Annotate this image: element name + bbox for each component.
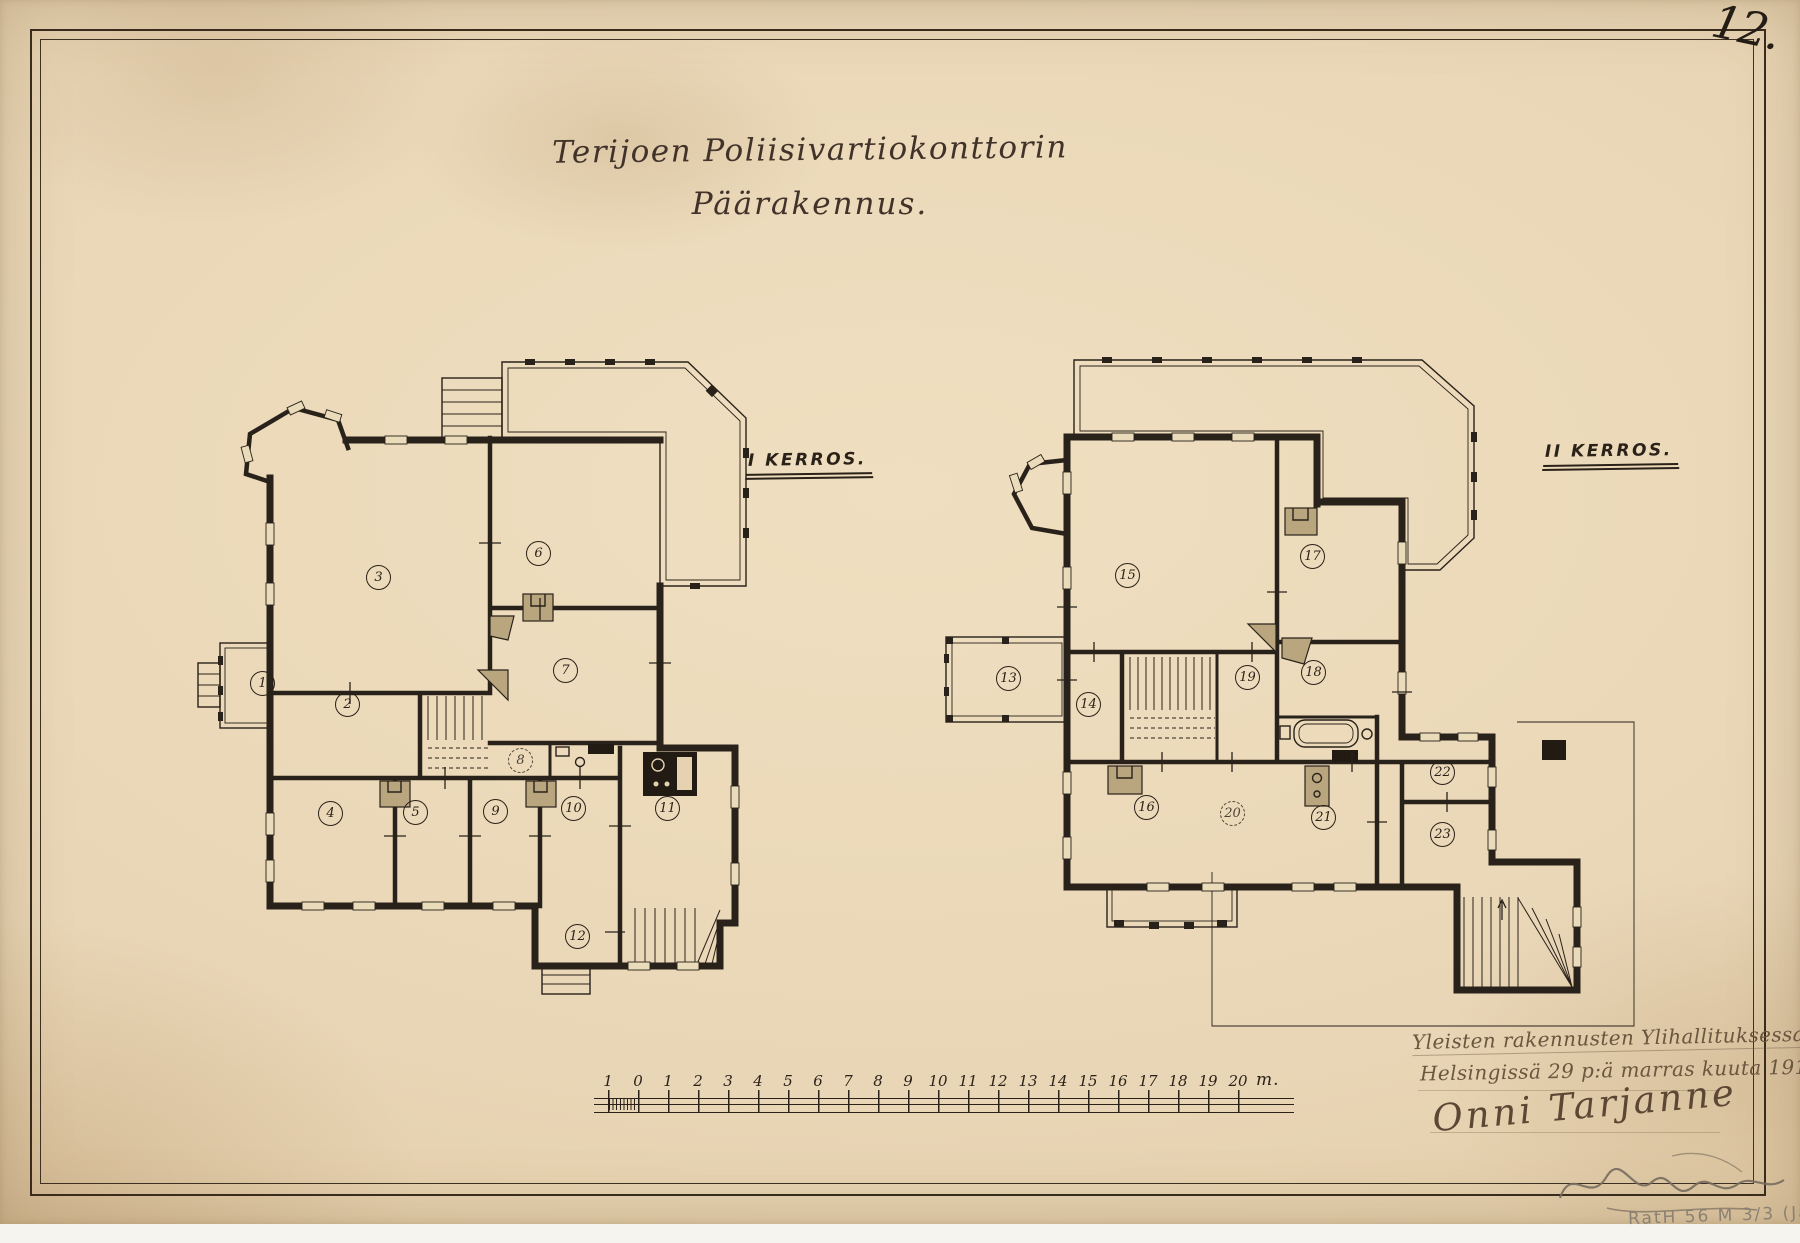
floor1-veranda-posts bbox=[525, 359, 749, 589]
room-number-22: 22 bbox=[1430, 760, 1455, 785]
scale-label-7: 6 bbox=[813, 1072, 823, 1090]
room-number-14: 14 bbox=[1076, 692, 1101, 717]
room-number-2: 2 bbox=[335, 692, 360, 717]
room-number-16: 16 bbox=[1134, 795, 1159, 820]
floor2-bathroom bbox=[1280, 720, 1372, 762]
room-number-11: 11 bbox=[655, 796, 680, 821]
floor1-back-staircase bbox=[635, 908, 720, 964]
scale-label-12: 11 bbox=[958, 1072, 977, 1090]
floor2-plan: 1314151617181920212223 bbox=[862, 342, 1652, 1032]
floor1-interior-walls bbox=[270, 438, 660, 966]
room-number-1: 1 bbox=[250, 671, 275, 696]
room-number-13: 13 bbox=[996, 666, 1021, 691]
room-number-8: 8 bbox=[508, 748, 533, 773]
room-number-23: 23 bbox=[1430, 822, 1455, 847]
floor1-tile-stoves bbox=[380, 594, 556, 807]
floor2-rear-terrace bbox=[1107, 887, 1237, 929]
floor1-exterior-steps bbox=[542, 966, 590, 994]
room-number-19: 19 bbox=[1235, 665, 1260, 690]
scale-bar-rails bbox=[594, 1098, 1294, 1113]
room-number-6: 6 bbox=[526, 541, 551, 566]
floor2-drawing bbox=[862, 342, 1652, 1032]
floor2-bay bbox=[1014, 460, 1067, 534]
floor2-staircase bbox=[1130, 657, 1215, 738]
floor1-door-ticks bbox=[350, 543, 671, 932]
scale-bar: 101234567891011121314151617181920 m. bbox=[608, 1072, 1308, 1120]
room-number-17: 17 bbox=[1300, 544, 1325, 569]
scale-bar-hatch bbox=[609, 1099, 637, 1110]
title-line-1: Terijoen Poliisivartiokonttorin bbox=[480, 129, 1140, 172]
scale-label-11: 10 bbox=[928, 1072, 947, 1090]
scale-label-18: 17 bbox=[1138, 1072, 1157, 1090]
scale-label-10: 9 bbox=[903, 1072, 913, 1090]
scale-label-16: 15 bbox=[1078, 1072, 1097, 1090]
scale-label-13: 12 bbox=[988, 1072, 1007, 1090]
floor1-kitchen-range bbox=[643, 752, 697, 796]
scale-label-3: 2 bbox=[693, 1072, 703, 1090]
floor2-interior-walls bbox=[1067, 437, 1492, 887]
room-number-12: 12 bbox=[565, 924, 590, 949]
scale-label-6: 5 bbox=[783, 1072, 793, 1090]
scale-label-20: 19 bbox=[1198, 1072, 1217, 1090]
scale-label-8: 7 bbox=[843, 1072, 853, 1090]
scale-label-14: 13 bbox=[1018, 1072, 1037, 1090]
room-number-9: 9 bbox=[483, 799, 508, 824]
floor1-drawing bbox=[190, 348, 880, 1008]
room-number-20: 20 bbox=[1220, 801, 1245, 826]
scale-bar-labels: 101234567891011121314151617181920 bbox=[608, 1072, 1240, 1090]
scale-label-15: 14 bbox=[1048, 1072, 1067, 1090]
scale-label-2: 1 bbox=[663, 1072, 673, 1090]
floor1-plan: 123456789101112 bbox=[190, 348, 880, 1008]
scale-label-1: 0 bbox=[633, 1072, 643, 1090]
floor1-staircase bbox=[428, 696, 488, 768]
scale-label-21: 20 bbox=[1228, 1072, 1247, 1090]
room-number-10: 10 bbox=[561, 796, 586, 821]
room-number-7: 7 bbox=[553, 658, 578, 683]
drawing-title: Terijoen Poliisivartiokonttorin Pääraken… bbox=[480, 132, 1140, 222]
title-line-2: Päärakennus. bbox=[480, 186, 1140, 222]
scale-bar-unit: m. bbox=[1256, 1070, 1280, 1090]
room-number-15: 15 bbox=[1115, 563, 1140, 588]
scale-label-0: 1 bbox=[603, 1072, 613, 1090]
room-number-5: 5 bbox=[403, 800, 428, 825]
room-number-3: 3 bbox=[366, 565, 391, 590]
room-number-21: 21 bbox=[1311, 805, 1336, 830]
scale-label-19: 18 bbox=[1168, 1072, 1187, 1090]
floor2-back-staircase bbox=[1464, 897, 1572, 987]
scale-label-9: 8 bbox=[873, 1072, 883, 1090]
room-number-4: 4 bbox=[318, 801, 343, 826]
scale-label-4: 3 bbox=[723, 1072, 733, 1090]
scale-label-5: 4 bbox=[753, 1072, 763, 1090]
room-number-18: 18 bbox=[1301, 660, 1326, 685]
scale-label-17: 16 bbox=[1108, 1072, 1127, 1090]
floor2-dark-closet bbox=[1542, 740, 1566, 760]
floor1-wc-fixtures bbox=[556, 744, 614, 767]
